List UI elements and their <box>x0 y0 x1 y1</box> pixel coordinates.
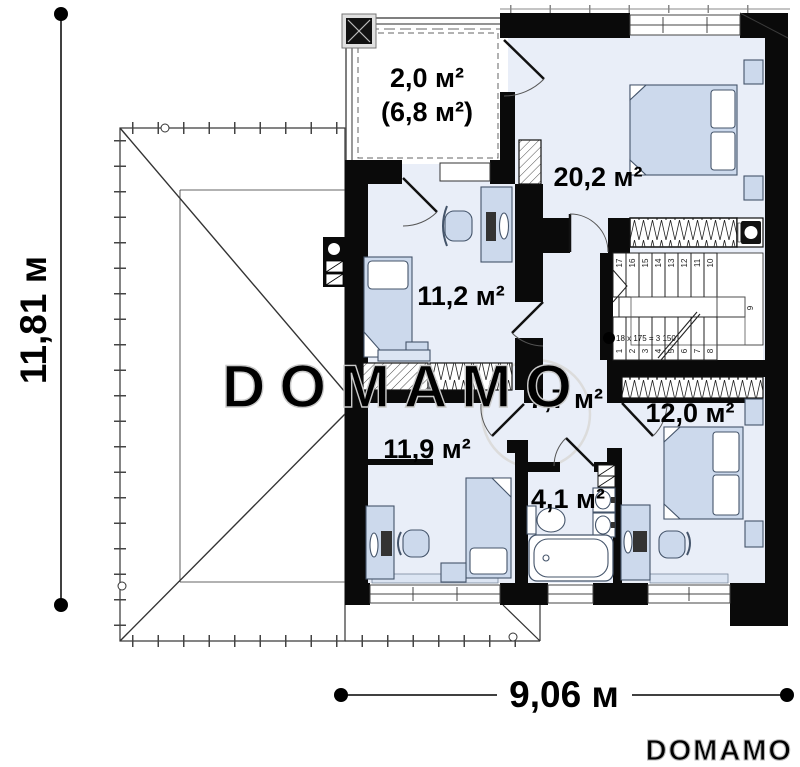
stair-start-dot <box>603 332 615 344</box>
stair-step-number: 5 <box>667 348 676 353</box>
bed-single-left <box>364 257 412 357</box>
desk-room-left <box>481 187 512 262</box>
stair-step-number: 3 <box>641 348 650 353</box>
stairwell-floor <box>613 253 763 360</box>
chimney-block <box>323 237 346 287</box>
window-sill <box>650 574 728 583</box>
stair-step-number: 12 <box>680 258 689 267</box>
dimension-left: 11,81 м <box>13 7 68 612</box>
room-label-bedroom-left: 11,9 м² <box>383 434 471 464</box>
desk-bedroom-right <box>621 505 650 580</box>
floor-plan-svg: 17 16 15 14 13 12 11 10 1 2 3 4 5 6 7 8 … <box>0 0 800 767</box>
window-bottom-middle <box>548 585 593 603</box>
nightstand <box>744 60 763 84</box>
window-bottom-right <box>648 585 730 603</box>
watermark-logo: DOMAMO <box>646 735 793 767</box>
stair-step-number: 10 <box>706 258 715 267</box>
closet-under-stairs <box>622 377 763 398</box>
washing-machine <box>737 218 763 247</box>
room-label-bedroom-top: 20,2 м² <box>553 162 642 192</box>
wardrobe-bedroom-top <box>630 218 737 247</box>
stair-step-number: 14 <box>654 258 663 267</box>
room-label-bedroom-right: 12,0 м² <box>645 398 734 428</box>
stair-step-number: 7 <box>693 348 702 353</box>
stair-step-number: 8 <box>706 348 715 353</box>
window-bottom-left <box>370 585 500 603</box>
stair-step-number: 17 <box>615 258 624 267</box>
room-label-balcony-total: (6,8 м²) <box>381 97 473 127</box>
desk-bedroom-left <box>366 506 394 579</box>
stair-step-number: 9 <box>746 305 755 310</box>
wardrobe-vestibule <box>519 140 541 184</box>
bed-double-top <box>630 85 737 175</box>
balcony-column <box>342 14 376 48</box>
window-top <box>630 15 740 35</box>
stair-step-number: 15 <box>641 258 650 267</box>
door-casing <box>440 163 490 181</box>
stair-step-number: 13 <box>667 258 676 267</box>
bed-double-right <box>664 427 743 519</box>
bathtub <box>529 535 613 581</box>
nightstand <box>745 521 763 547</box>
stair-step-number: 2 <box>628 348 637 353</box>
stair-step-number: 4 <box>654 348 663 353</box>
stair-formula: 18 x 175 = 3 150 <box>616 334 676 343</box>
stair-step-number: 11 <box>693 258 702 267</box>
bed-single-bottom <box>466 478 511 578</box>
nightstand <box>744 176 763 200</box>
floor-plan-page: 17 16 15 14 13 12 11 10 1 2 3 4 5 6 7 8 … <box>0 0 800 767</box>
nightstand <box>441 563 466 582</box>
dimension-height-label: 11,81 м <box>13 256 54 384</box>
room-label-balcony-area: 2,0 м² <box>390 63 464 93</box>
room-label-bathroom: 4,1 м² <box>531 484 605 514</box>
dimension-width-label: 9,06 м <box>509 674 619 715</box>
stair-step-number: 16 <box>628 258 637 267</box>
stair-step-number: 6 <box>680 348 689 353</box>
stair-step-number: 1 <box>615 348 624 353</box>
dimension-bottom: 9,06 м <box>334 674 794 715</box>
nightstand <box>745 399 763 425</box>
watermark-center: DOMAMO <box>222 353 586 420</box>
room-label-room-left: 11,2 м² <box>417 281 505 311</box>
